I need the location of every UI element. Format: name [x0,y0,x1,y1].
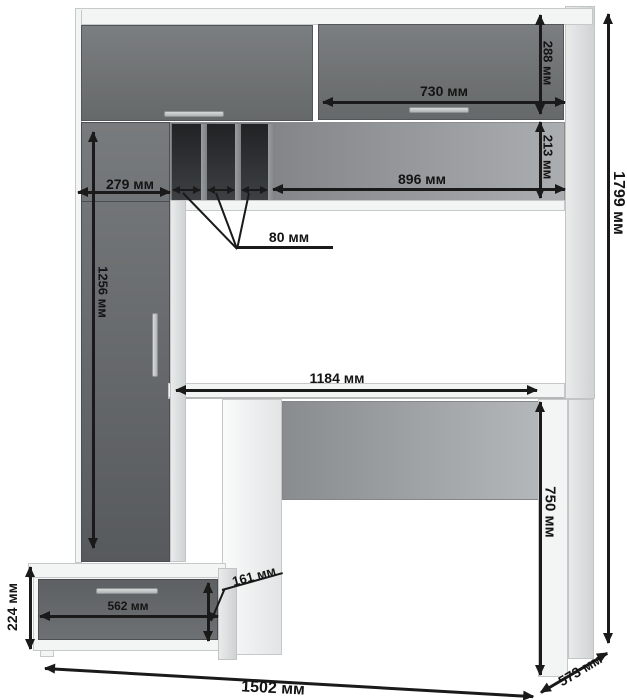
dim-80-slot-arrow [208,189,234,191]
top-right-door [318,24,564,120]
tall-cabinet-side [170,200,186,562]
pedestal-foot [40,650,54,657]
top-right-door-handle-icon [409,107,469,113]
right-side-panel [565,6,595,399]
dim-896-line [273,188,565,191]
dim-896-label: 896 мм [398,171,446,187]
desk-right-support-side [568,399,594,659]
top-left-door [81,25,313,121]
dim-224-line [29,567,32,649]
shelf-board [166,200,565,211]
dim-1184-line [176,389,537,392]
hutch-top-board [75,8,593,25]
top-left-door-handle-icon [164,111,224,117]
dim-1502-label: 1502 мм [241,678,306,699]
cabinet-seam [82,201,169,202]
dim-224-label: 224 мм [4,583,20,631]
dim-288-label: 288 мм [541,41,556,86]
dim-562-line [40,615,218,618]
dim-730-label: 730 мм [420,83,468,99]
desk-dimension-diagram: 288 мм 730 мм 213 мм 896 мм 279 мм 80 мм… [0,0,627,700]
dim-80-slot-arrow [173,189,200,191]
dim-1256-line [92,132,95,548]
dim-213-label: 213 мм [541,135,556,180]
modesty-panel [282,401,540,500]
dim-730-line [323,101,565,104]
dim-1256-label: 1256 мм [96,266,111,318]
pedestal-top-board [28,563,226,578]
dim-279-label: 279 мм [106,176,154,192]
dim-161-line [207,583,210,641]
desk-right-support [538,399,568,677]
dim-80-slot-arrow [242,189,267,191]
dim-750-label: 750 мм [542,486,559,537]
dim-562-label: 562 мм [107,599,148,613]
tall-cabinet-handle-icon [152,313,158,377]
drawer-handle-icon [96,588,158,594]
dim-80-label: 80 мм [269,229,309,245]
dim-1799-label: 1799 мм [609,171,627,235]
dim-1799-line [607,14,610,643]
dim-1184-label: 1184 мм [310,370,365,386]
dim-80-underline [237,246,333,249]
dim-750-line [539,402,542,675]
